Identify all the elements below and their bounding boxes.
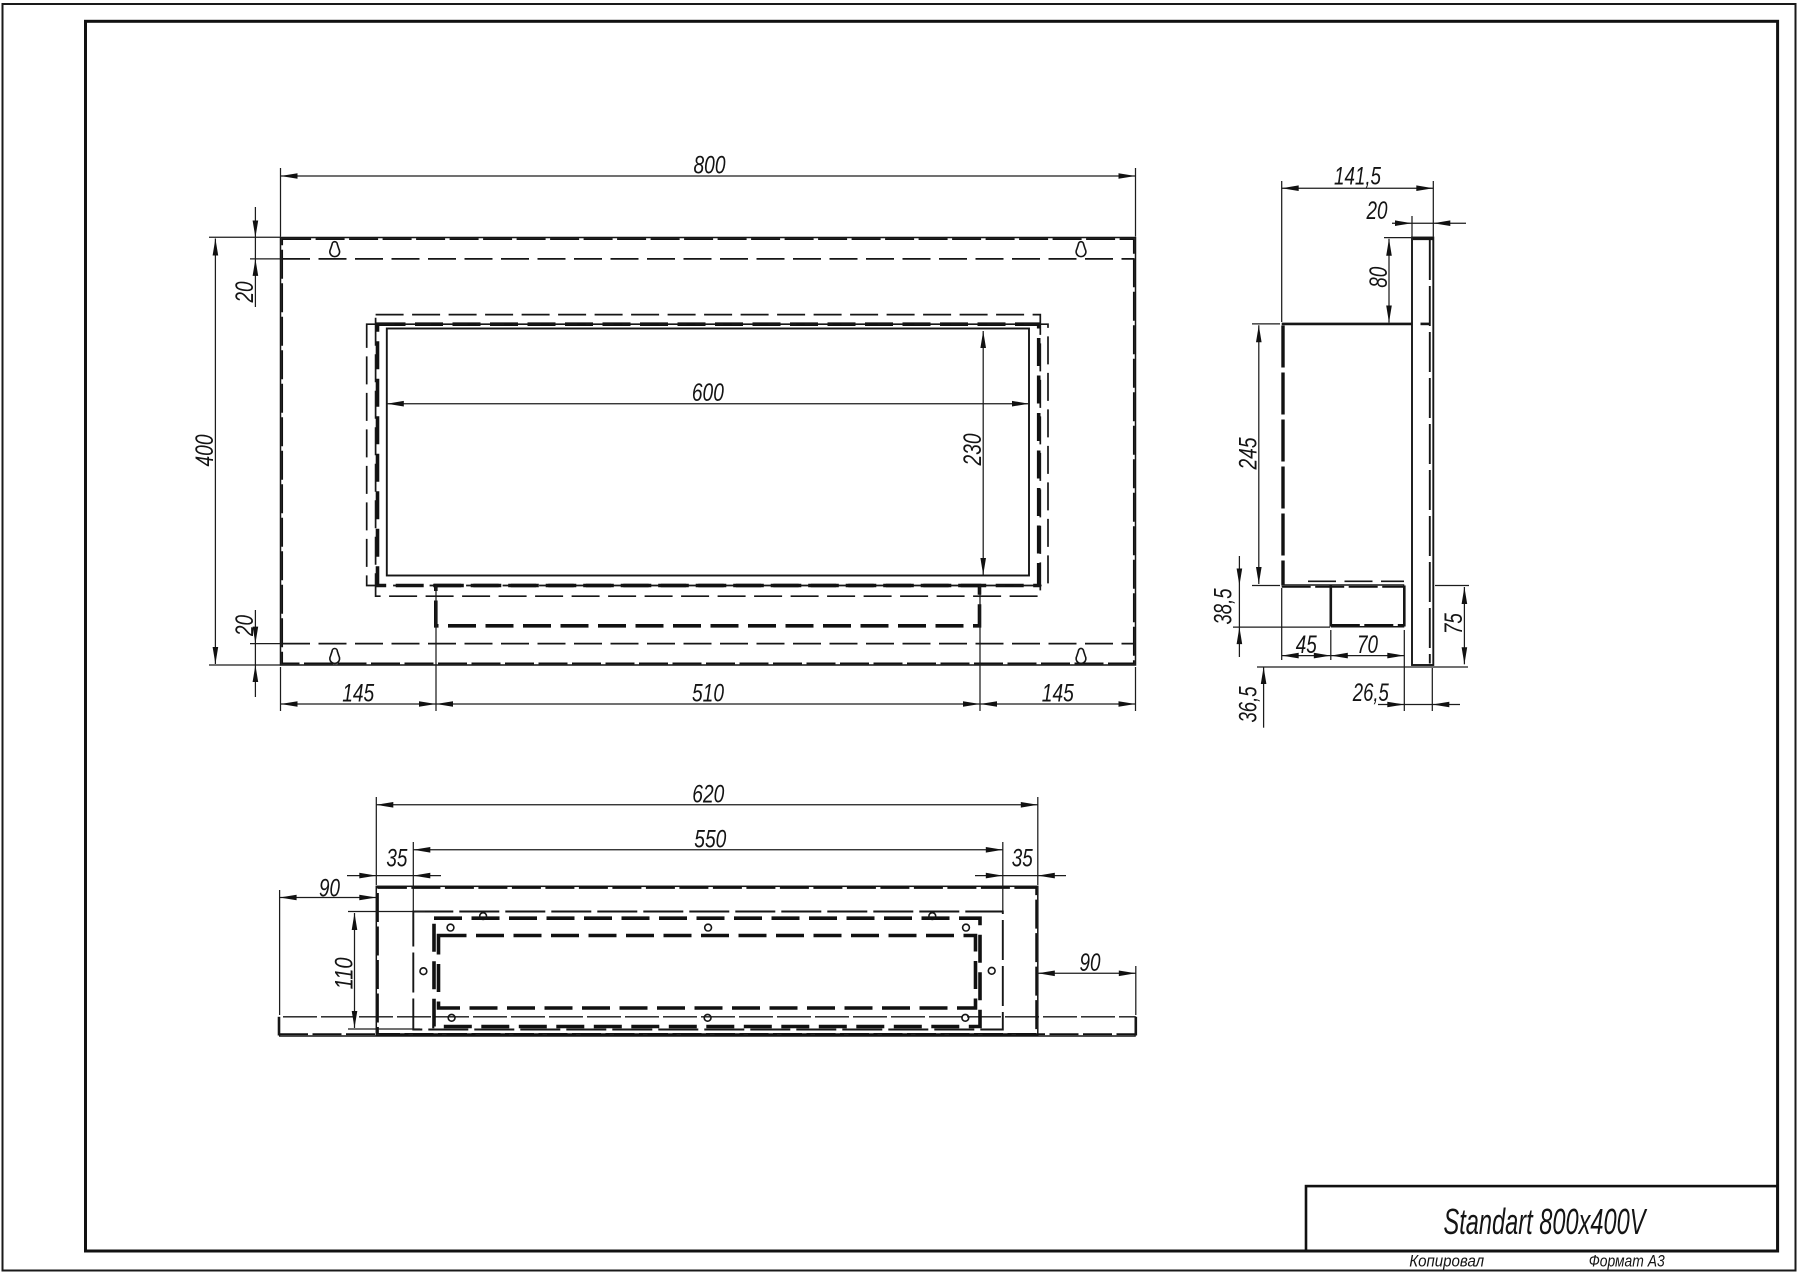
svg-text:245: 245: [1235, 437, 1263, 470]
svg-text:80: 80: [1365, 267, 1393, 288]
svg-text:20: 20: [1366, 197, 1388, 225]
svg-text:90: 90: [1080, 949, 1101, 977]
svg-text:75: 75: [1440, 613, 1468, 634]
svg-text:35: 35: [1012, 844, 1033, 872]
svg-text:36,5: 36,5: [1235, 686, 1263, 722]
svg-text:141,5: 141,5: [1334, 162, 1381, 190]
svg-text:600: 600: [692, 379, 724, 407]
svg-text:110: 110: [330, 957, 358, 989]
svg-text:26,5: 26,5: [1352, 679, 1389, 707]
svg-text:400: 400: [191, 434, 219, 466]
svg-text:90: 90: [319, 875, 340, 903]
svg-text:35: 35: [386, 844, 407, 872]
svg-text:38,5: 38,5: [1210, 588, 1238, 624]
svg-text:Копировал: Копировал: [1409, 1252, 1484, 1271]
svg-text:510: 510: [692, 680, 724, 708]
svg-text:230: 230: [959, 433, 987, 466]
svg-text:Standart 800x400V: Standart 800x400V: [1444, 1201, 1648, 1242]
svg-text:20: 20: [231, 281, 259, 303]
svg-text:20: 20: [231, 615, 259, 637]
svg-text:Формат А3: Формат А3: [1589, 1252, 1665, 1271]
svg-text:550: 550: [694, 825, 726, 853]
svg-text:45: 45: [1296, 631, 1317, 659]
svg-text:145: 145: [1042, 680, 1074, 708]
svg-text:145: 145: [342, 680, 374, 708]
svg-text:70: 70: [1357, 631, 1378, 659]
svg-text:800: 800: [694, 152, 726, 180]
svg-text:620: 620: [692, 780, 724, 808]
